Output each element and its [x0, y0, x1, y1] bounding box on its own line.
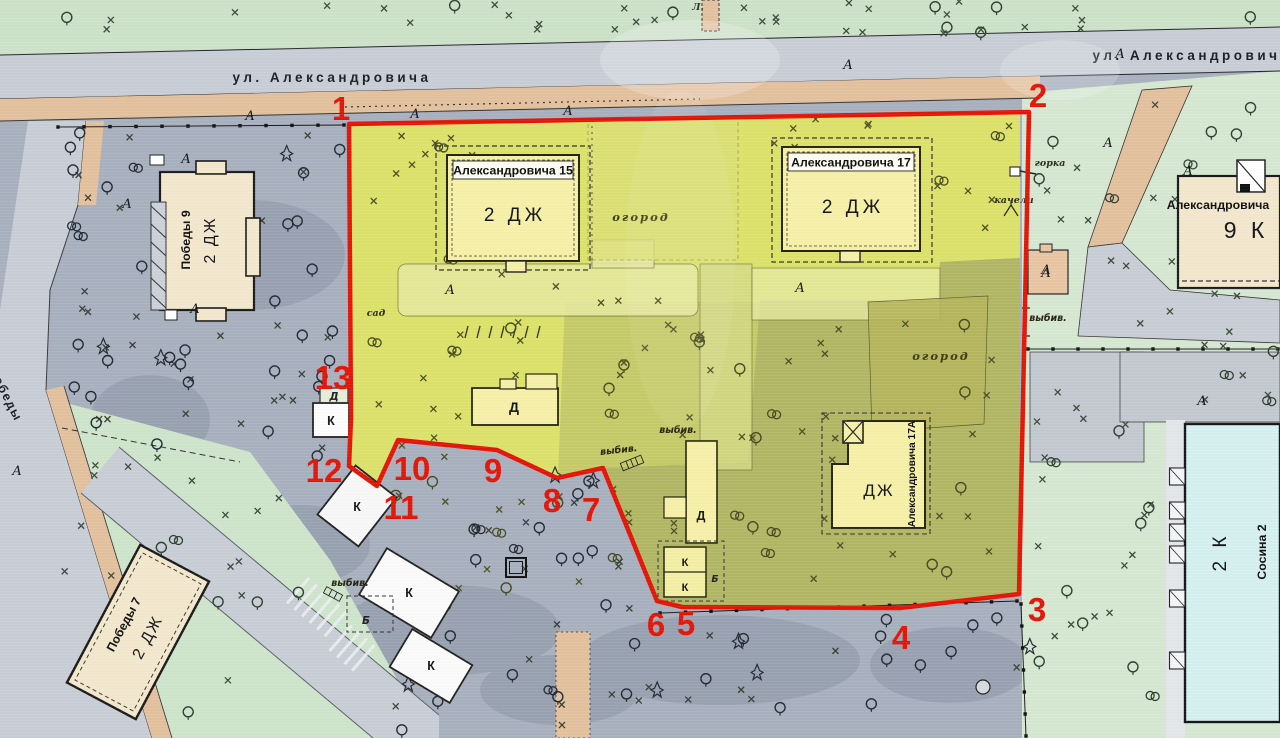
fence-post	[1051, 347, 1054, 350]
building-type-label: 9 К	[1224, 217, 1269, 243]
building-pobedy9: Победы 9 2 ДЖ	[150, 155, 260, 321]
shed-label: К	[353, 500, 361, 514]
road-surface-mark: А	[1196, 394, 1207, 409]
vertex-label-6: 6	[647, 606, 665, 643]
garden-plot-east	[868, 296, 988, 432]
site-plan-screenshot: Победы 9 2 ДЖ Победы 7 2 ДЖ Александрови…	[0, 0, 1280, 738]
fence-post	[290, 124, 293, 127]
fence-post	[1023, 690, 1026, 693]
fence-post	[709, 610, 712, 613]
fence-post	[1019, 602, 1022, 605]
fence-post	[160, 125, 163, 128]
shed-label: К	[427, 659, 435, 673]
fence-post	[1023, 712, 1026, 715]
road-surface-mark: А	[121, 197, 132, 212]
fence-post	[264, 124, 267, 127]
fence-post	[1151, 347, 1154, 350]
vertex-label-9: 9	[484, 452, 502, 489]
shed-label: К	[327, 414, 335, 428]
road-surface-mark: А	[1182, 164, 1193, 179]
building-label: Александровича	[1167, 198, 1270, 212]
fence-post	[186, 124, 189, 127]
building-type-label: 2 ДЖ	[202, 217, 219, 264]
building-aleks15: Александровича 15 2 ДЖ	[436, 146, 590, 272]
fence-post	[1024, 734, 1027, 737]
fence-post	[1176, 347, 1179, 350]
building-aleks17: Александровича 17 2 ДЖ	[772, 138, 932, 262]
fence-post	[1226, 347, 1229, 350]
shed-label: Д	[509, 399, 519, 415]
gorka-label: горка	[1035, 158, 1066, 169]
shed-label: К	[405, 586, 413, 600]
building-sosina2: 2 К Сосина 2	[1170, 424, 1280, 722]
vertex-label-12: 12	[306, 452, 343, 489]
building-label: Сосина 2	[1255, 524, 1269, 579]
road-surface-mark: А	[794, 281, 805, 296]
building-label: Александровича 15	[453, 164, 573, 178]
road-surface-mark: А	[409, 107, 420, 122]
sad-label: сад	[367, 308, 386, 319]
fence-post	[990, 600, 993, 603]
road-surface-mark: А	[180, 152, 191, 167]
vertex-label-2: 2	[1029, 77, 1047, 114]
fence-post	[134, 125, 137, 128]
building-label: Александровича 17А	[907, 420, 918, 527]
shed-label: Д	[697, 509, 706, 523]
vybiv-label: выбив.	[331, 578, 369, 589]
fence-post	[82, 125, 85, 128]
shed-label: Б	[711, 574, 718, 585]
shed-label: К	[682, 557, 689, 569]
vertex-label-11: 11	[384, 489, 419, 526]
south-footpath	[556, 632, 590, 738]
building-type-label: 2 ДЖ	[822, 197, 884, 218]
shed-label: Б	[362, 615, 370, 627]
building-type-label: 2 К	[1210, 533, 1231, 572]
building-label: Победы 9	[179, 210, 193, 270]
road-surface-mark: А	[444, 283, 455, 298]
vertex-label-8: 8	[543, 482, 561, 519]
vertex-label-7: 7	[582, 491, 600, 528]
vertex-label-3: 3	[1028, 591, 1046, 628]
road-surface-mark: А	[842, 58, 853, 73]
road-surface-mark: А	[11, 464, 22, 479]
road-surface-mark: А	[244, 109, 255, 124]
road-surface-mark: А	[1040, 263, 1051, 278]
vertex-label-4: 4	[892, 619, 911, 656]
vybiv-label: выбив.	[1029, 313, 1067, 324]
shed-label: К	[682, 582, 689, 594]
building-type-label: 2 ДЖ	[484, 205, 546, 226]
fence-post	[56, 125, 59, 128]
vertex-label-13: 13	[315, 359, 352, 396]
fence-post	[1076, 347, 1079, 350]
vertex-label-5: 5	[677, 605, 695, 642]
fence-post	[1126, 347, 1129, 350]
site-plan-map: Победы 9 2 ДЖ Победы 7 2 ДЖ Александрови…	[0, 0, 1280, 738]
building-aleks9k: Александровича 9 К	[1167, 160, 1280, 288]
fence-post	[108, 125, 111, 128]
road-surface-mark: А	[189, 302, 200, 317]
road-surface-mark: А	[562, 104, 573, 119]
building-type-label: ДЖ	[863, 481, 894, 500]
fence-post	[316, 123, 319, 126]
round-structure	[976, 680, 990, 694]
fence-post	[1251, 347, 1254, 350]
partial-street-label: Л.	[691, 2, 704, 13]
fence-post	[238, 124, 241, 127]
fence-post	[1020, 624, 1023, 627]
fence-post	[212, 124, 215, 127]
road-surface-mark: А	[1102, 136, 1113, 151]
vertex-label-1: 1	[332, 90, 350, 127]
street-label-alexandrovicha-left: ул. Александровича	[233, 70, 432, 85]
vertex-label-10: 10	[394, 450, 431, 487]
ogorod-label: огород	[912, 349, 970, 363]
fence-post	[1022, 668, 1025, 671]
fence-post	[1101, 347, 1104, 350]
fence-post	[1026, 347, 1029, 350]
fence-post	[1015, 599, 1018, 602]
building-label: Александровича 17	[791, 156, 911, 170]
